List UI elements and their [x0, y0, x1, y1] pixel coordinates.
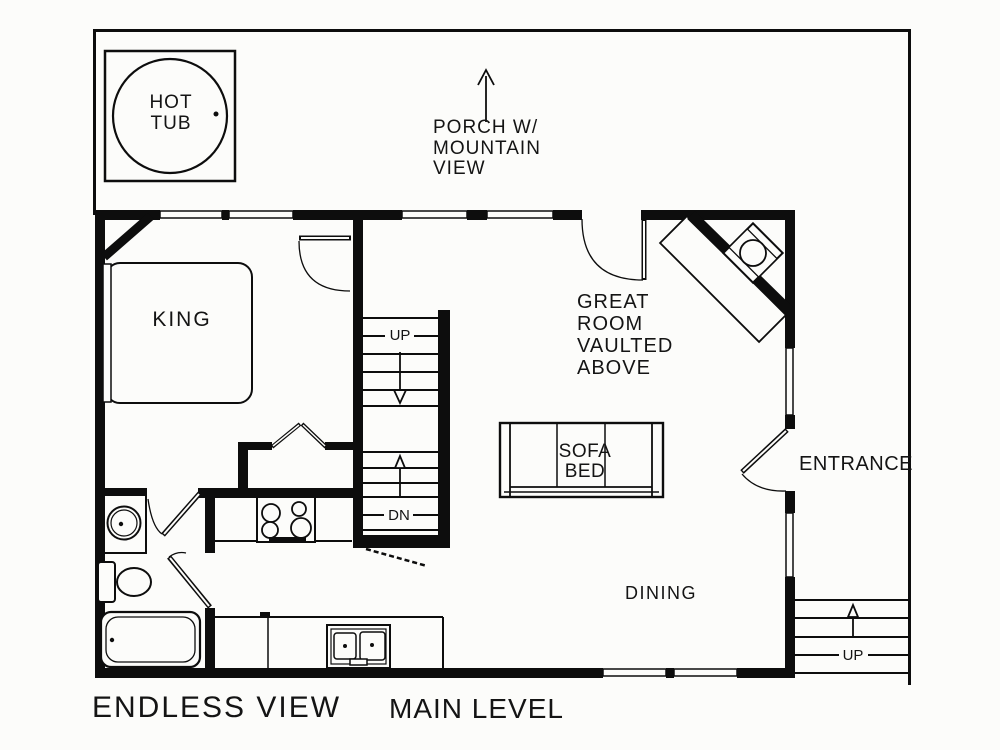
wall-corner-brace — [104, 216, 151, 257]
window-bottom-2 — [674, 669, 737, 676]
fireplace-hearth — [660, 216, 786, 342]
wall-top-c — [467, 210, 487, 220]
burner — [262, 522, 278, 538]
wall-right-a — [785, 210, 795, 348]
wall-right-b — [785, 415, 795, 429]
bathtub — [101, 612, 200, 667]
sofa-bed-label: SOFA BED — [534, 442, 636, 481]
burner — [262, 504, 280, 522]
wall-bottom-mullion — [666, 668, 674, 678]
bathroom-door — [148, 493, 200, 535]
window-bottom-1 — [603, 669, 666, 676]
hot-tub-jet — [214, 112, 219, 117]
tub-drain — [110, 638, 114, 642]
king-bed-mattress — [106, 263, 252, 403]
wall-right-d — [785, 577, 795, 678]
sink-drain — [370, 643, 374, 647]
stove-handle — [269, 537, 306, 543]
corner-fireplace — [660, 215, 789, 342]
center-stairs — [363, 318, 438, 566]
vanity-sink — [104, 495, 146, 553]
dining-label: DINING — [625, 583, 697, 604]
wall-bottom-a — [95, 668, 603, 678]
sink-faucet — [350, 659, 367, 665]
stairs-continue-dashed-line — [366, 549, 427, 566]
bedroom-door-arc — [299, 241, 350, 291]
window-top-4 — [487, 211, 553, 218]
bathroom — [98, 495, 200, 667]
entrance-door — [742, 430, 787, 491]
wall-top-d — [553, 210, 582, 220]
window-top-3 — [402, 211, 467, 218]
entrance-door-arc — [742, 474, 786, 491]
porch-label: PORCH W/ MOUNTAIN VIEW — [433, 118, 541, 180]
greatroom-door-arc — [582, 219, 643, 280]
wall-top-b — [293, 210, 402, 220]
wall-hall-a — [205, 490, 215, 553]
toilet — [98, 562, 151, 602]
wall-bottom-b — [737, 668, 793, 678]
mountain-view-arrow-icon — [478, 70, 494, 122]
entrance-label: ENTRANCE — [799, 453, 913, 476]
porch-edge-right — [908, 29, 911, 685]
center-stairs-up-label: UP — [384, 327, 416, 344]
wall-hall-b — [205, 608, 215, 672]
stove — [257, 497, 315, 543]
fireplace-flue — [740, 240, 766, 266]
window-right-2 — [786, 513, 793, 577]
center-stairs-dn-label: DN — [383, 507, 415, 524]
sink-drain — [343, 644, 347, 648]
kitchen-sink — [327, 625, 390, 668]
vanity-drain — [119, 522, 123, 526]
toilet-tank — [98, 562, 115, 602]
wall-right-c — [785, 491, 795, 513]
counter-detail — [260, 612, 270, 618]
outer-up-arrowhead-icon — [848, 605, 858, 617]
wall-top-mullion — [222, 210, 229, 220]
up-direction-arrowhead-icon — [395, 456, 405, 468]
wall-closet-left — [238, 442, 248, 490]
toilet-bowl — [117, 568, 151, 596]
porch-edge-left — [93, 29, 96, 215]
wall-stair-bottom — [353, 535, 450, 548]
window-right-1 — [786, 348, 793, 415]
window-top-2 — [229, 211, 293, 218]
wall-stair-right — [438, 310, 450, 536]
porch-edge-top — [93, 29, 911, 32]
level-name-title: MAIN LEVEL — [389, 693, 564, 725]
window-top-1 — [160, 211, 222, 218]
wall-closet-b — [325, 442, 353, 450]
burner — [292, 502, 306, 516]
wall-top-e — [641, 210, 793, 220]
wall-stair-left — [353, 218, 363, 548]
down-direction-arrowhead-icon — [394, 390, 406, 403]
entrance-stairs-up-label: UP — [837, 647, 869, 664]
closet-bifold-door — [272, 424, 326, 447]
great-room-label: GREAT ROOM VAULTED ABOVE — [577, 291, 673, 379]
property-name-title: ENDLESS VIEW — [92, 691, 341, 725]
king-bedroom-label: KING — [133, 308, 231, 332]
hall-door — [169, 553, 210, 608]
hot-tub-label: HOT TUB — [128, 92, 214, 134]
bathroom-door-arc — [148, 499, 162, 534]
greatroom-door — [582, 219, 644, 280]
king-bed-headboard — [103, 264, 111, 402]
bedroom-door — [299, 238, 351, 291]
king-bed — [103, 263, 252, 403]
burner — [291, 518, 311, 538]
floorplan-page: HOT TUB PORCH W/ MOUNTAIN VIEW KING GREA… — [0, 0, 1000, 750]
